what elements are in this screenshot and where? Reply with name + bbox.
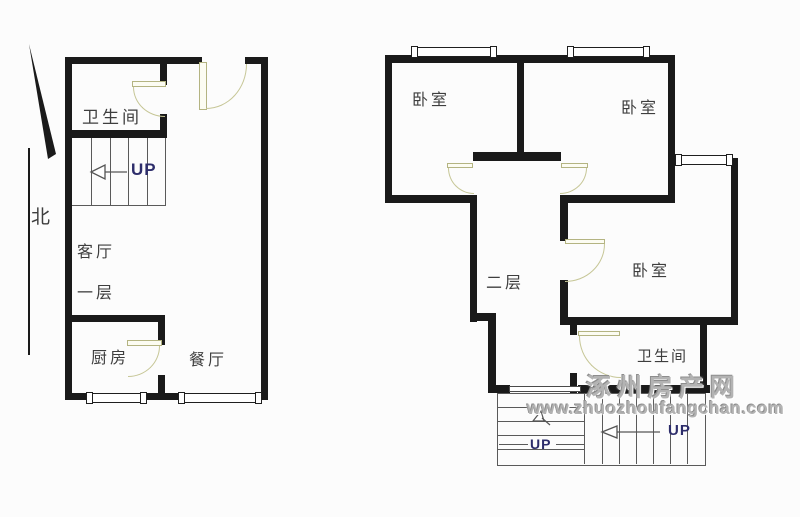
f2-bedroom3-label: 卧室 xyxy=(632,264,670,280)
f2-bedroom3-window xyxy=(676,155,732,165)
watermark-site-url: www.zhuozhoufangchan.com xyxy=(527,400,784,418)
f2-stair-opening-sill xyxy=(509,386,581,392)
f1-bathroom-wall-bottom xyxy=(65,130,167,138)
f1-wall-top-a xyxy=(65,57,202,64)
f2-bedroom3-wall-bottom xyxy=(568,317,738,325)
f2-hall-wall-right-lower xyxy=(560,280,568,325)
f2-bedroom2-label: 卧室 xyxy=(621,101,659,117)
f2-stairs-up-flank-line-left xyxy=(499,444,528,445)
f2-wall-bottom-a xyxy=(488,385,510,393)
f1-floor-name-label: 一层 xyxy=(77,286,115,302)
f2-stairs-up-left-label: UP xyxy=(530,437,551,451)
north-arrow-staff xyxy=(28,148,30,355)
f2-bedroom1-label: 卧室 xyxy=(412,93,450,109)
f2-bedroom1-wall-bottom xyxy=(385,195,477,203)
f1-stairs-up-label: UP xyxy=(131,161,157,178)
f2-bathroom-label: 卫生间 xyxy=(637,349,688,364)
north-label: 北 xyxy=(31,208,53,227)
f2-bedroom1-window xyxy=(412,47,496,57)
f2-floor-name-label: 二层 xyxy=(486,276,524,292)
f1-kitchen-door-arc xyxy=(128,346,160,377)
f2-wall-bedroom-divider xyxy=(517,55,524,158)
f2-bedroom2-wall-right xyxy=(668,55,675,203)
f2-bathroom-door-arc xyxy=(579,336,621,378)
f2-stairs-up-right-label: UP xyxy=(668,423,691,438)
f2-hall-wall-top xyxy=(473,152,561,161)
f1-stairs-edge-bottom xyxy=(72,205,166,206)
f1-kitchen-label: 厨房 xyxy=(91,351,129,367)
f1-dining-window xyxy=(179,393,261,403)
f1-kitchen-wall-top xyxy=(72,315,165,322)
f2-bathroom-wall-left-upper xyxy=(570,325,577,335)
f2-wall-outer-right xyxy=(731,158,738,325)
f1-stairs-direction-arrow-icon xyxy=(90,164,130,181)
f1-wall-right xyxy=(261,57,268,400)
floor-plan-canvas: 北 UP 卫生间 客厅 一层 厨房 餐厅 xyxy=(0,0,800,517)
f1-dining-room-label: 餐厅 xyxy=(189,353,227,369)
f2-stairs-up-flank-line-right xyxy=(556,444,584,445)
f1-entry-door-arc xyxy=(206,64,247,109)
north-arrow-icon xyxy=(22,42,62,162)
f2-wall-left xyxy=(385,55,392,203)
f2-bedroom1-door-arc xyxy=(448,168,474,194)
f2-bedroom3-door-arc xyxy=(565,244,605,282)
f1-wall-left xyxy=(65,57,72,400)
f2-step-wall-vertical xyxy=(488,313,496,393)
f2-stairs-right-direction-arrow-icon xyxy=(601,424,663,441)
f1-stairs-edge-right xyxy=(165,138,166,206)
f2-hall-wall-left xyxy=(470,195,477,322)
f1-living-room-label: 客厅 xyxy=(77,245,115,261)
f2-bedroom2-wall-bottom xyxy=(560,195,675,203)
f1-kitchen-window xyxy=(87,393,146,403)
f2-bedroom2-door-arc xyxy=(560,168,587,194)
f2-hall-wall-right-upper xyxy=(560,203,568,241)
f1-kitchen-wall-right-lower xyxy=(158,375,165,400)
f1-bathroom-label: 卫生间 xyxy=(82,109,142,126)
f2-bedroom2-window xyxy=(568,47,649,57)
